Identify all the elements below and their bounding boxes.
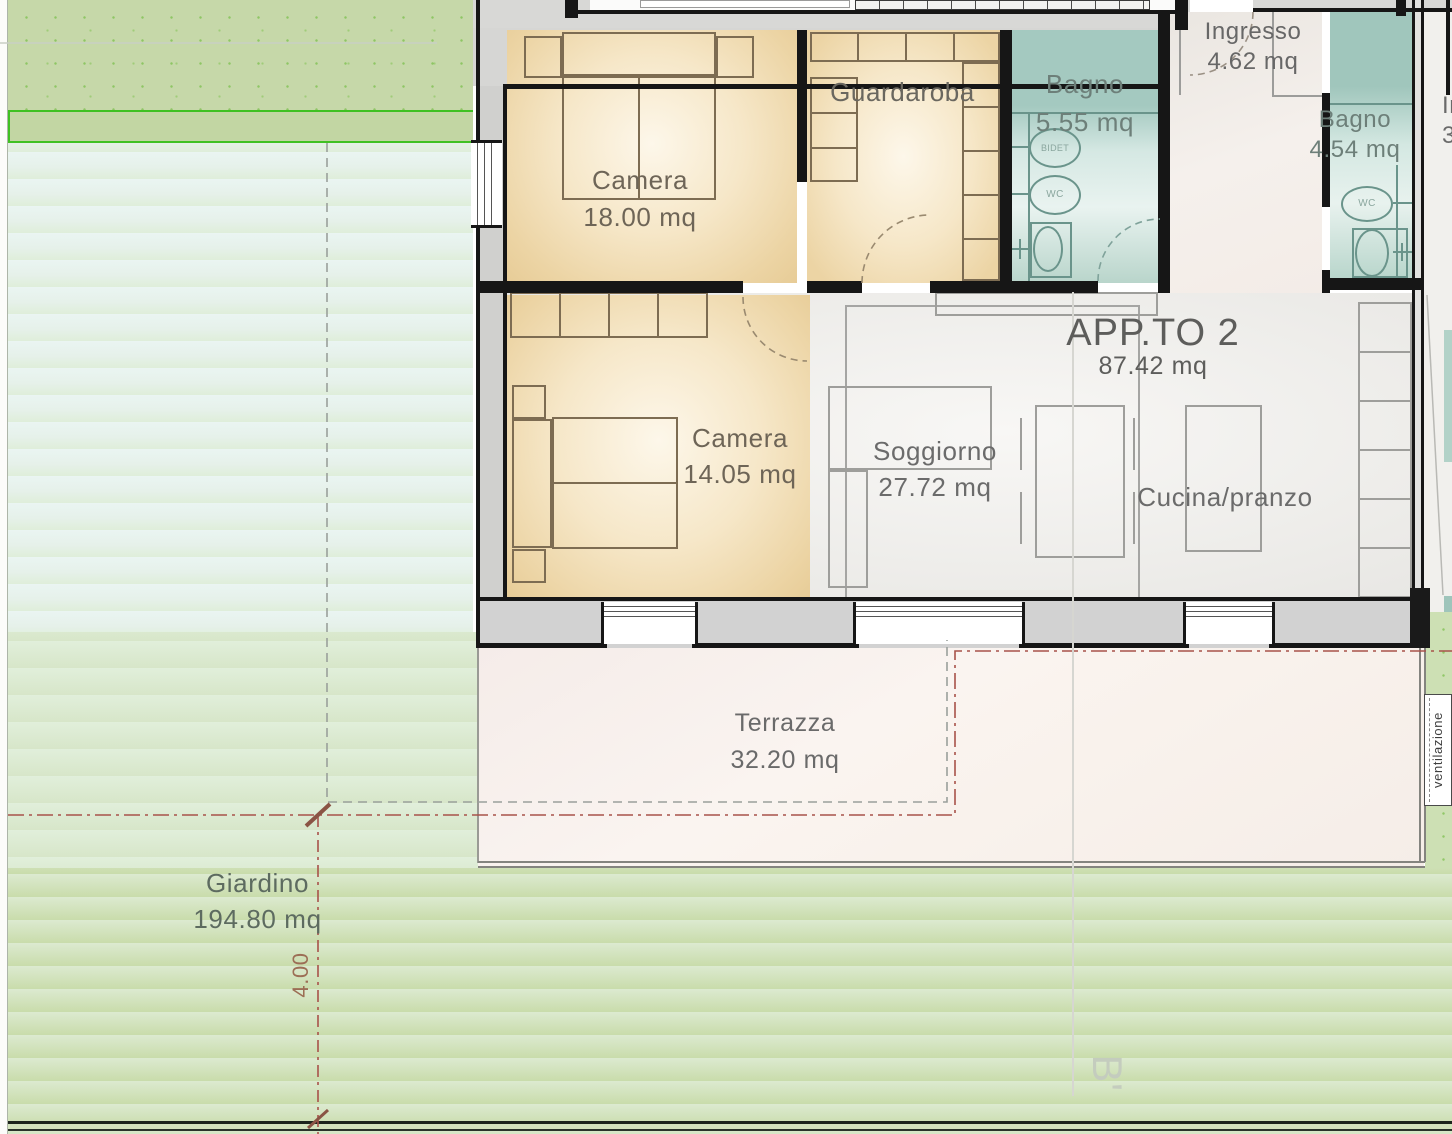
- camera2-label: Camera: [640, 424, 840, 454]
- adjacent-unit-clipped-text: In 3: [1441, 92, 1452, 162]
- giardino-label: Giardino: [160, 869, 355, 899]
- soggiorno-area: 27.72 mq: [840, 473, 1030, 503]
- ingresso-label: Ingresso: [1173, 18, 1333, 46]
- section-marker-label: B': [1081, 1043, 1131, 1103]
- apartment-area: 87.42 mq: [1003, 352, 1303, 381]
- bagno2-label: Bagno: [1295, 106, 1415, 134]
- shaft-diagonal-line: [1427, 295, 1443, 595]
- camera2-area: 14.05 mq: [640, 460, 840, 490]
- floor-plan: BIDET WC WC ventilazione Camera 18.00 mq: [0, 0, 1452, 1134]
- door-arc: [1098, 219, 1160, 281]
- bagno1-label: Bagno: [1012, 70, 1158, 100]
- door-arc: [862, 215, 930, 283]
- adjacent-text-1: In: [1442, 92, 1452, 120]
- soggiorno-label: Soggiorno: [840, 437, 1030, 467]
- camera1-area: 18.00 mq: [540, 203, 740, 233]
- bagno1-area: 5.55 mq: [1012, 108, 1158, 138]
- adjacent-text-2: 3: [1442, 122, 1452, 150]
- camera1-label: Camera: [540, 166, 740, 196]
- terrazza-label: Terrazza: [690, 709, 880, 738]
- dimension-label: 4.00: [288, 945, 310, 1005]
- cucina-label: Cucina/pranzo: [1105, 483, 1345, 513]
- terrazza-area: 32.20 mq: [690, 746, 880, 775]
- ingresso-area: 4.62 mq: [1173, 48, 1333, 76]
- bagno2-area: 4.54 mq: [1295, 136, 1415, 164]
- door-arc: [743, 297, 807, 361]
- guardaroba-label: Guardaroba: [790, 78, 1015, 108]
- giardino-area: 194.80 mq: [160, 905, 355, 935]
- ventilation-label: ventilazione: [1431, 694, 1445, 806]
- apartment-name: APP.TO 2: [1003, 312, 1303, 356]
